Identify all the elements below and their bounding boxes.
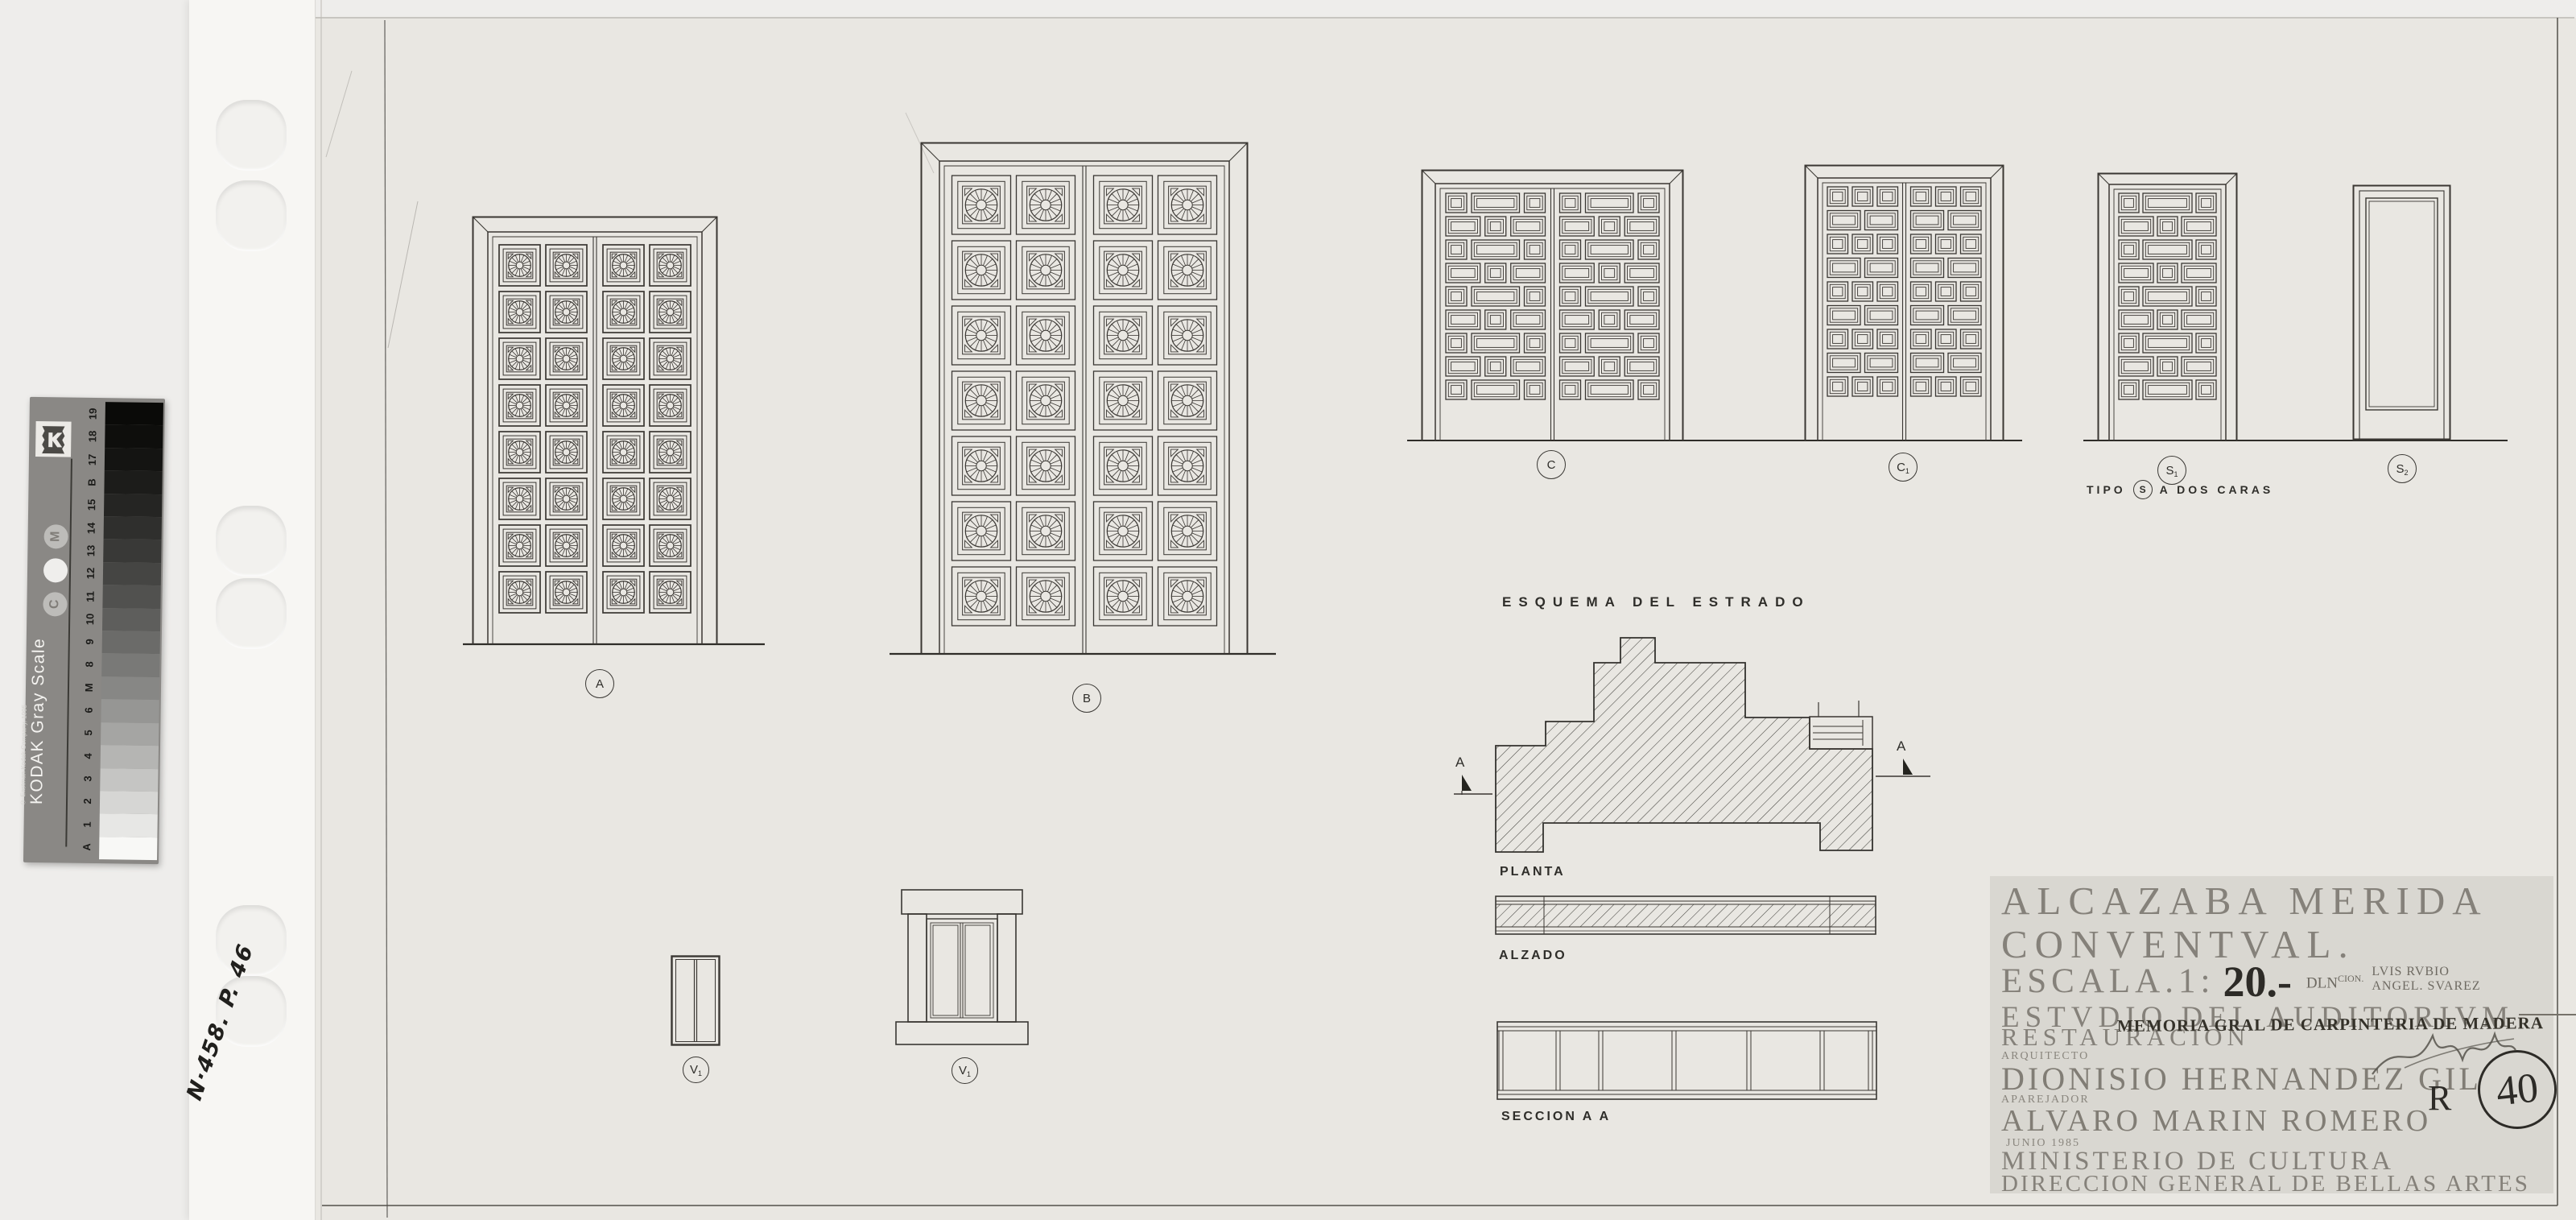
kodak-gray-scale-strip: KODAK Gray Scale © Eastman Kodak Company… bbox=[23, 397, 165, 864]
door-B-elevation bbox=[920, 142, 1249, 658]
project-title-line1: ALCAZABA MERIDA bbox=[2001, 878, 2488, 924]
door-S2-elevation bbox=[2352, 184, 2451, 445]
gray-scale-tick: 13 bbox=[85, 540, 97, 561]
gray-step bbox=[104, 516, 162, 540]
gray-scale-tick: 12 bbox=[85, 563, 97, 584]
draftsmen-names: LVIS RVBIOANGEL. SVAREZ bbox=[2372, 965, 2480, 994]
grayscale-dot-M: M bbox=[43, 524, 68, 548]
gray-scale-tick: 4 bbox=[82, 745, 95, 766]
door-C1-elevation bbox=[1804, 164, 2004, 445]
gray-scale-tick: 19 bbox=[87, 403, 100, 424]
type-note-suffix: A DOS CARAS bbox=[2160, 483, 2274, 496]
type-note-prefix: TIPO bbox=[2087, 483, 2126, 496]
section-marker-left: A bbox=[1455, 755, 1465, 770]
door-C-label: C bbox=[1537, 450, 1566, 479]
draftsman-name: LVIS RVBIO bbox=[2372, 965, 2480, 979]
gray-step bbox=[103, 540, 161, 563]
draftsman-name: ANGEL. SVAREZ bbox=[2372, 979, 2480, 994]
section-marker-right: A bbox=[1897, 738, 1906, 754]
gray-scale-tick: 11 bbox=[84, 585, 97, 606]
gray-scale-tick: 18 bbox=[86, 426, 99, 447]
gray-step bbox=[101, 745, 159, 768]
scale-value: 20.- bbox=[2223, 957, 2291, 1007]
gray-scale-tick: 14 bbox=[85, 517, 98, 538]
direction-line: DIRECCION GENERAL DE BELLAS ARTES bbox=[2001, 1171, 2530, 1197]
gray-scale-tick: 10 bbox=[84, 609, 97, 630]
gray-step bbox=[102, 631, 160, 654]
door-S1-elevation bbox=[2097, 172, 2238, 445]
elevation-label: ALZADO bbox=[1499, 949, 1567, 963]
gray-step bbox=[101, 699, 159, 722]
gray-step bbox=[101, 654, 159, 677]
gray-scale-tick: 17 bbox=[86, 449, 99, 470]
gray-scale-tick: M bbox=[83, 677, 96, 698]
gray-step bbox=[105, 402, 163, 425]
gray-step bbox=[105, 448, 163, 471]
type-note: TIPO S A DOS CARAS bbox=[2087, 480, 2273, 499]
gray-step bbox=[100, 791, 158, 814]
kodak-logo-icon bbox=[35, 421, 72, 457]
gray-steps bbox=[99, 402, 163, 860]
gray-scale-tick: 3 bbox=[81, 768, 94, 789]
gray-step bbox=[99, 837, 157, 860]
window-V1p-elevation bbox=[671, 955, 720, 1050]
punched-hole bbox=[216, 506, 287, 577]
gray-scale-tick: 9 bbox=[84, 631, 97, 652]
gray-scale-tick: 8 bbox=[83, 654, 96, 675]
gray-step bbox=[103, 562, 161, 585]
scale-label: ESCALA.1: bbox=[2001, 962, 2215, 1001]
door-B-label: B bbox=[1072, 684, 1101, 713]
grayscale-dot-C: C bbox=[43, 592, 67, 616]
gray-scale-tick: 2 bbox=[81, 791, 94, 812]
door-A-elevation bbox=[472, 216, 718, 648]
window-V1-elevation bbox=[895, 888, 1029, 1049]
surveyor-name: ALVARO MARIN ROMERO bbox=[2001, 1103, 2431, 1139]
gray-step bbox=[99, 813, 157, 837]
project-title-line2: CONVENTVAL. bbox=[2001, 921, 2355, 967]
punched-hole bbox=[216, 180, 287, 251]
gray-step bbox=[101, 722, 159, 746]
window-V1p-label: V1 bbox=[683, 1057, 709, 1083]
estrado-plan-drawing: AA bbox=[1449, 628, 1932, 882]
gray-scale-tick: 5 bbox=[82, 722, 95, 743]
punched-hole bbox=[216, 578, 287, 649]
gray-step bbox=[104, 470, 162, 494]
grayscale-copyright: © Eastman Kodak Company, 1995 bbox=[19, 709, 37, 806]
type-note-circled-letter: S bbox=[2133, 480, 2153, 499]
gray-step bbox=[100, 768, 158, 792]
window-V1-label: V1 bbox=[952, 1057, 978, 1084]
estrado-section-drawing bbox=[1489, 1016, 1884, 1110]
plan-label: PLANTA bbox=[1500, 865, 1566, 879]
architect-signature bbox=[2356, 1011, 2525, 1092]
draftsman-label: DLNCION. bbox=[2306, 973, 2363, 992]
gray-step bbox=[102, 585, 160, 608]
door-C-elevation bbox=[1421, 169, 1684, 445]
gray-step bbox=[104, 494, 162, 517]
gray-scale-tick: A bbox=[80, 837, 93, 858]
grayscale-dot-blank bbox=[43, 558, 68, 582]
gray-step bbox=[102, 608, 160, 631]
door-A-label: A bbox=[585, 669, 614, 698]
section-label: SECCION A A bbox=[1501, 1110, 1611, 1124]
gray-scale-tick: B bbox=[85, 472, 98, 493]
title-block: ALCAZABA MERIDA CONVENTVAL. ESCALA.1: 20… bbox=[1990, 876, 2553, 1193]
scanned-drawing-photo: ABCC1S1S2V1V1 TIPO S A DOS CARAS ESQUEMA… bbox=[0, 0, 2576, 1220]
gray-step bbox=[101, 676, 159, 700]
gray-scale-tick: 15 bbox=[85, 494, 98, 515]
estrado-elevation-drawing bbox=[1489, 892, 1884, 945]
gray-scale-tick: 1 bbox=[80, 813, 93, 834]
brand-rule-line bbox=[65, 459, 72, 847]
gray-step bbox=[105, 425, 163, 449]
punched-hole bbox=[216, 100, 287, 171]
gray-scale-tick: 6 bbox=[82, 700, 95, 721]
estrado-title: ESQUEMA DEL ESTRADO bbox=[1502, 594, 1810, 610]
door-C1-label: C1 bbox=[1889, 453, 1918, 482]
door-S2-label: S2 bbox=[2388, 454, 2417, 483]
